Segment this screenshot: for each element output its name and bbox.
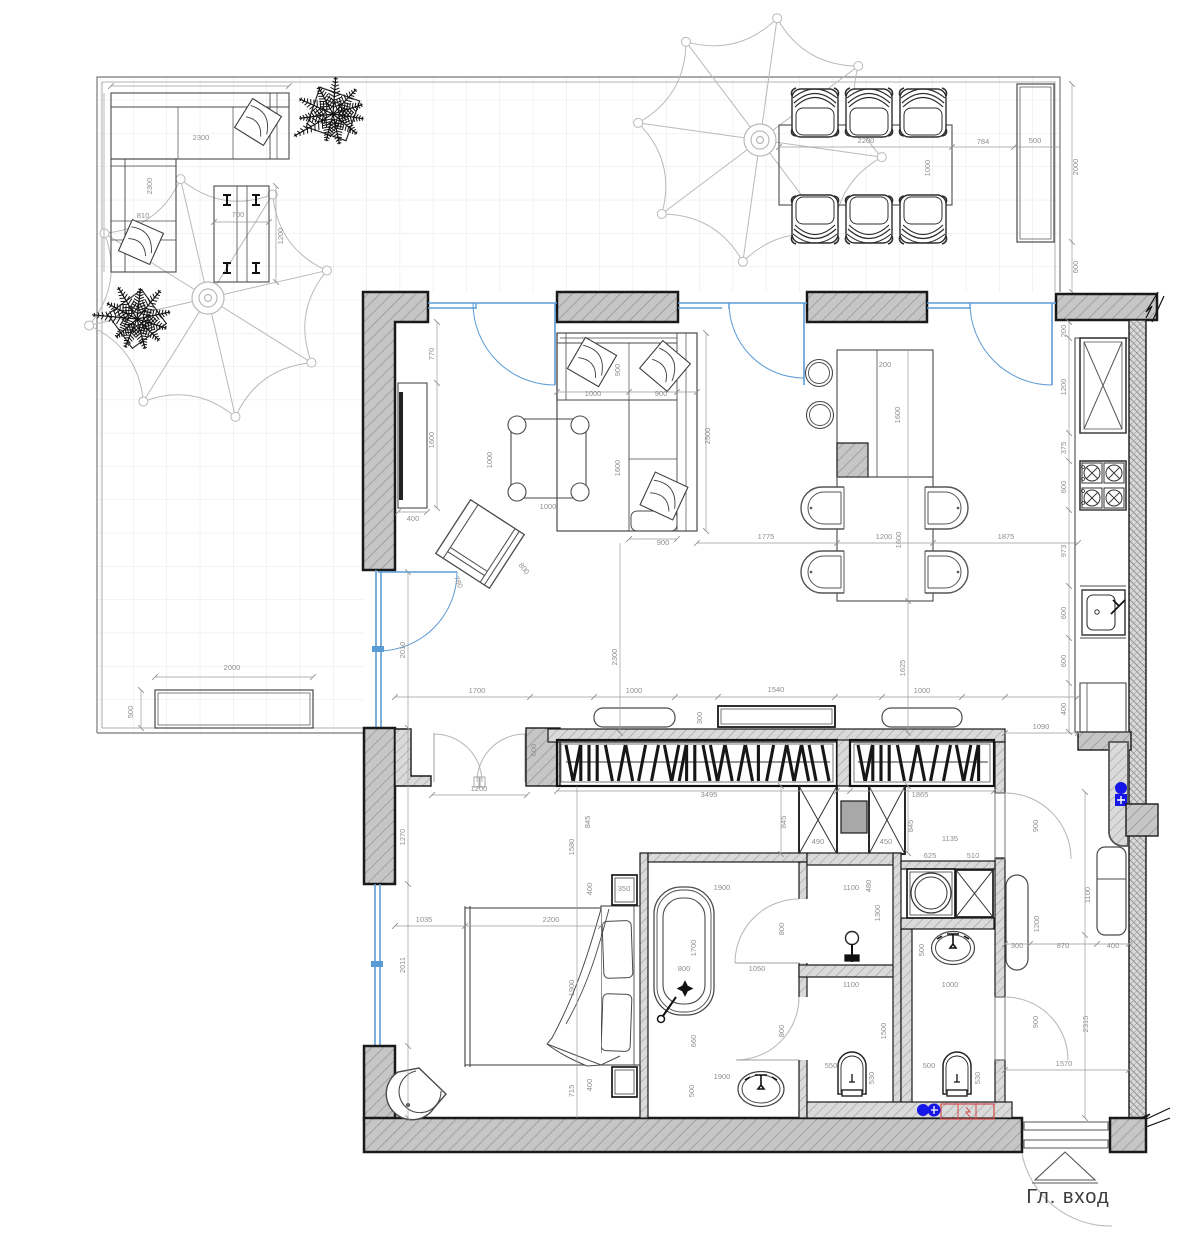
svg-text:2200: 2200 <box>543 915 560 924</box>
svg-text:2000: 2000 <box>224 663 241 672</box>
svg-text:900: 900 <box>613 364 622 377</box>
svg-text:1600: 1600 <box>894 532 903 549</box>
svg-text:200: 200 <box>1059 325 1068 338</box>
svg-text:700: 700 <box>232 210 245 219</box>
svg-text:1200: 1200 <box>1032 916 1041 933</box>
svg-text:600: 600 <box>1071 261 1080 274</box>
svg-text:3495: 3495 <box>701 790 718 799</box>
svg-text:500: 500 <box>126 706 135 719</box>
svg-text:800: 800 <box>777 1025 786 1038</box>
svg-text:1625: 1625 <box>898 660 907 677</box>
svg-text:400: 400 <box>585 1079 594 1092</box>
svg-text:1200: 1200 <box>1059 379 1068 396</box>
svg-text:1270: 1270 <box>398 829 407 846</box>
svg-text:1570: 1570 <box>1056 1059 1073 1068</box>
svg-text:715: 715 <box>567 1085 576 1098</box>
svg-text:375: 375 <box>1059 442 1068 455</box>
svg-text:1900: 1900 <box>567 980 576 997</box>
svg-text:400: 400 <box>585 883 594 896</box>
svg-text:660: 660 <box>689 1035 698 1048</box>
svg-text:1000: 1000 <box>585 389 602 398</box>
svg-text:500: 500 <box>687 1085 696 1098</box>
svg-text:2000: 2000 <box>1071 159 1080 176</box>
svg-text:1700: 1700 <box>469 686 486 695</box>
svg-text:845: 845 <box>779 816 788 829</box>
svg-text:500: 500 <box>1029 136 1042 145</box>
svg-text:784: 784 <box>977 137 990 146</box>
svg-text:870: 870 <box>1057 941 1070 950</box>
svg-text:1200: 1200 <box>471 784 488 793</box>
svg-text:2300: 2300 <box>145 178 154 195</box>
svg-text:530: 530 <box>973 1072 982 1085</box>
svg-text:1600: 1600 <box>893 407 902 424</box>
svg-text:1875: 1875 <box>998 532 1015 541</box>
svg-text:1050: 1050 <box>749 964 766 973</box>
svg-text:845: 845 <box>906 820 915 833</box>
svg-text:490: 490 <box>812 837 825 846</box>
svg-text:900: 900 <box>1031 820 1040 833</box>
svg-text:900: 900 <box>1031 1016 1040 1029</box>
svg-text:900: 900 <box>657 538 670 547</box>
svg-text:770: 770 <box>427 348 436 361</box>
svg-text:1000: 1000 <box>942 980 959 989</box>
svg-text:500: 500 <box>923 1061 936 1070</box>
svg-text:1600: 1600 <box>427 432 436 449</box>
svg-text:500: 500 <box>917 944 926 957</box>
svg-text:450: 450 <box>880 837 893 846</box>
svg-text:1600: 1600 <box>613 460 622 477</box>
svg-text:1000: 1000 <box>914 686 931 695</box>
svg-text:2200: 2200 <box>858 136 875 145</box>
svg-text:973: 973 <box>1059 545 1068 558</box>
svg-text:2011: 2011 <box>398 957 407 973</box>
svg-text:900: 900 <box>655 389 668 398</box>
svg-text:1000: 1000 <box>923 160 932 177</box>
svg-text:480: 480 <box>864 880 873 893</box>
svg-text:845: 845 <box>583 816 592 829</box>
svg-text:1300: 1300 <box>873 905 882 922</box>
svg-text:600: 600 <box>1059 607 1068 620</box>
svg-text:1200: 1200 <box>276 228 285 245</box>
svg-text:600: 600 <box>529 744 538 757</box>
svg-text:1700: 1700 <box>689 940 698 957</box>
svg-text:1580: 1580 <box>567 839 576 856</box>
svg-text:2315: 2315 <box>1081 1016 1090 1033</box>
svg-text:1000: 1000 <box>485 452 494 469</box>
svg-text:1090: 1090 <box>1033 722 1050 731</box>
svg-text:800: 800 <box>777 923 786 936</box>
svg-text:1000: 1000 <box>540 502 557 511</box>
svg-text:530: 530 <box>867 1072 876 1085</box>
svg-text:1200: 1200 <box>876 532 893 541</box>
svg-text:350: 350 <box>618 884 631 893</box>
svg-text:1135: 1135 <box>942 834 958 843</box>
svg-text:2300: 2300 <box>193 133 210 142</box>
svg-text:1540: 1540 <box>768 685 785 694</box>
svg-text:1100: 1100 <box>1083 887 1092 903</box>
svg-text:600: 600 <box>1059 481 1068 494</box>
svg-text:1100: 1100 <box>843 883 859 892</box>
svg-text:Гл. вход: Гл. вход <box>1026 1186 1109 1208</box>
svg-text:400: 400 <box>407 514 420 523</box>
svg-text:625: 625 <box>924 851 937 860</box>
svg-text:400: 400 <box>1107 941 1120 950</box>
svg-text:810: 810 <box>137 211 150 220</box>
svg-text:800: 800 <box>678 964 691 973</box>
svg-text:510: 510 <box>967 851 980 860</box>
svg-text:200: 200 <box>879 360 892 369</box>
svg-text:550: 550 <box>825 1061 838 1070</box>
svg-text:1900: 1900 <box>714 1072 731 1081</box>
svg-text:1865: 1865 <box>912 790 929 799</box>
svg-text:1000: 1000 <box>626 686 643 695</box>
svg-text:1900: 1900 <box>714 883 731 892</box>
svg-text:2300: 2300 <box>610 649 619 666</box>
svg-text:600: 600 <box>1059 655 1068 668</box>
svg-text:2010: 2010 <box>398 642 407 659</box>
svg-text:300: 300 <box>1011 941 1024 950</box>
svg-text:2500: 2500 <box>703 428 712 445</box>
svg-text:1100: 1100 <box>843 980 859 989</box>
svg-text:1500: 1500 <box>879 1023 888 1040</box>
svg-text:1035: 1035 <box>416 915 433 924</box>
svg-text:300: 300 <box>695 712 704 725</box>
svg-text:400: 400 <box>1059 703 1068 716</box>
svg-text:1775: 1775 <box>758 532 775 541</box>
